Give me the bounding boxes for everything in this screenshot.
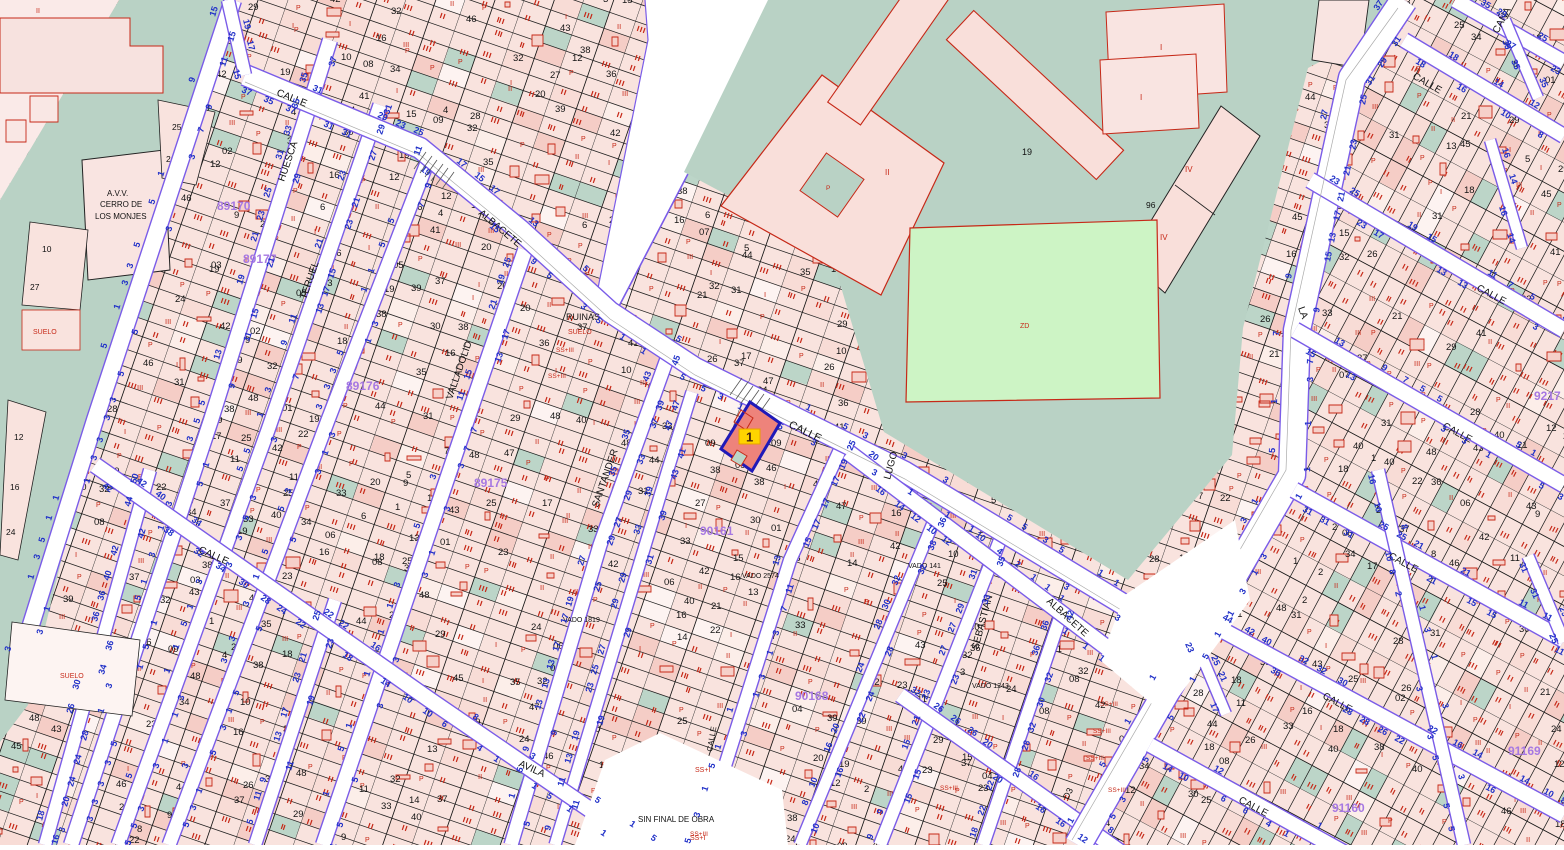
svg-text:33: 33 <box>680 536 691 547</box>
svg-text:P: P <box>569 70 574 77</box>
svg-text:42: 42 <box>890 541 901 552</box>
svg-text:32: 32 <box>513 53 524 64</box>
svg-text:P: P <box>343 403 348 410</box>
svg-text:38: 38 <box>787 813 798 824</box>
svg-text:31: 31 <box>1389 130 1400 141</box>
svg-text:P: P <box>917 630 922 637</box>
svg-text:P: P <box>521 647 526 654</box>
svg-text:06: 06 <box>325 530 336 541</box>
svg-text:P: P <box>1543 280 1548 287</box>
svg-text:35: 35 <box>483 157 494 168</box>
svg-text:P: P <box>398 322 403 329</box>
svg-text:P: P <box>419 776 424 783</box>
svg-text:47: 47 <box>504 448 515 459</box>
svg-text:12: 12 <box>1546 423 1557 434</box>
svg-text:16: 16 <box>10 482 20 492</box>
svg-text:P: P <box>993 744 998 751</box>
svg-text:P: P <box>697 731 702 738</box>
svg-text:28: 28 <box>1149 554 1160 565</box>
svg-text:31: 31 <box>1432 211 1443 222</box>
svg-text:I: I <box>495 640 497 649</box>
svg-text:29: 29 <box>1558 164 1564 175</box>
svg-text:P: P <box>349 461 354 468</box>
svg-text:16: 16 <box>674 215 685 226</box>
svg-text:15: 15 <box>733 553 744 564</box>
svg-text:43: 43 <box>915 640 926 651</box>
svg-text:1: 1 <box>746 430 753 445</box>
svg-text:I: I <box>1381 750 1383 759</box>
svg-text:89175: 89175 <box>474 476 508 490</box>
svg-text:26: 26 <box>1260 314 1271 325</box>
svg-text:10: 10 <box>948 549 959 560</box>
svg-text:14: 14 <box>677 632 688 643</box>
svg-text:14: 14 <box>409 795 420 806</box>
svg-text:89170: 89170 <box>217 199 251 213</box>
svg-text:47: 47 <box>836 501 847 512</box>
svg-text:P: P <box>593 597 598 604</box>
svg-text:III: III <box>245 408 251 417</box>
svg-text:45: 45 <box>453 673 464 684</box>
svg-text:P: P <box>679 707 684 714</box>
svg-text:42: 42 <box>610 128 621 139</box>
svg-text:6: 6 <box>705 210 710 221</box>
svg-text:32: 32 <box>1339 252 1350 263</box>
svg-text:P: P <box>581 136 586 143</box>
svg-text:21: 21 <box>1341 165 1353 177</box>
svg-text:10: 10 <box>621 365 632 376</box>
svg-text:III: III <box>1369 294 1375 303</box>
svg-text:I: I <box>1540 163 1542 172</box>
svg-text:P: P <box>578 243 583 250</box>
svg-text:19: 19 <box>1022 147 1032 157</box>
svg-text:23: 23 <box>1347 139 1359 151</box>
svg-text:P: P <box>826 185 830 192</box>
svg-text:P: P <box>1371 158 1376 165</box>
svg-text:I: I <box>478 280 480 289</box>
svg-text:19: 19 <box>280 67 291 78</box>
svg-text:I: I <box>1002 713 1004 722</box>
svg-text:SIN FINAL DE OBRA: SIN FINAL DE OBRA <box>638 815 715 824</box>
svg-text:24: 24 <box>531 622 542 633</box>
svg-text:P: P <box>1420 155 1425 162</box>
svg-text:P: P <box>1327 492 1332 499</box>
svg-text:34: 34 <box>1345 549 1356 560</box>
svg-text:P: P <box>117 453 122 460</box>
svg-text:20: 20 <box>813 753 824 764</box>
svg-text:32: 32 <box>391 6 402 17</box>
svg-text:19: 19 <box>209 264 220 275</box>
svg-text:P: P <box>1229 486 1234 493</box>
svg-text:I: I <box>1440 187 1442 196</box>
svg-text:29: 29 <box>293 809 304 820</box>
svg-text:P: P <box>281 301 286 308</box>
svg-text:2: 2 <box>1318 567 1323 578</box>
svg-text:P: P <box>482 5 487 12</box>
svg-text:23: 23 <box>498 547 509 558</box>
svg-text:LOS MONJES: LOS MONJES <box>95 212 147 221</box>
svg-text:III: III <box>687 252 693 261</box>
svg-text:II: II <box>1449 493 1453 502</box>
svg-text:I: I <box>396 86 398 95</box>
svg-text:P: P <box>206 291 211 298</box>
svg-text:P: P <box>308 764 313 771</box>
svg-text:1: 1 <box>395 502 400 513</box>
svg-text:P: P <box>1202 840 1207 845</box>
svg-text:P: P <box>612 735 617 742</box>
svg-text:16: 16 <box>445 348 456 359</box>
svg-text:20: 20 <box>520 303 531 314</box>
svg-text:P: P <box>148 342 153 349</box>
svg-text:19: 19 <box>309 414 320 425</box>
svg-text:4: 4 <box>443 105 448 116</box>
svg-text:P: P <box>859 515 864 522</box>
svg-text:P: P <box>1442 819 1447 826</box>
svg-text:VADO 2574: VADO 2574 <box>742 573 779 580</box>
svg-text:20: 20 <box>481 242 492 253</box>
svg-text:IV: IV <box>1185 165 1193 174</box>
svg-text:22: 22 <box>1220 493 1231 504</box>
svg-text:11: 11 <box>359 784 369 795</box>
svg-text:31: 31 <box>1291 610 1302 621</box>
svg-text:I: I <box>608 158 610 167</box>
svg-text:P: P <box>1025 823 1030 830</box>
svg-text:I: I <box>368 243 370 252</box>
svg-text:11: 11 <box>230 454 240 465</box>
svg-text:38: 38 <box>710 465 721 476</box>
svg-text:SS+III: SS+III <box>690 831 708 838</box>
svg-text:36: 36 <box>838 398 849 409</box>
svg-text:P: P <box>1316 367 1321 374</box>
svg-text:34: 34 <box>1471 32 1482 43</box>
svg-text:P: P <box>1428 180 1433 187</box>
svg-text:04: 04 <box>792 704 803 715</box>
svg-text:SUELO: SUELO <box>568 329 592 336</box>
svg-text:29: 29 <box>510 413 521 424</box>
svg-text:P: P <box>305 505 310 512</box>
svg-text:3: 3 <box>603 0 608 5</box>
svg-text:II: II <box>726 651 730 660</box>
svg-text:I: I <box>565 12 567 21</box>
svg-text:III: III <box>59 612 65 621</box>
svg-text:P: P <box>365 837 370 844</box>
svg-text:48: 48 <box>1426 447 1437 458</box>
svg-text:25: 25 <box>241 433 252 444</box>
svg-text:42: 42 <box>330 0 341 5</box>
svg-text:09: 09 <box>433 115 444 126</box>
svg-text:46: 46 <box>466 14 477 25</box>
svg-text:31: 31 <box>1381 418 1392 429</box>
svg-text:46: 46 <box>143 358 154 369</box>
svg-text:P: P <box>1486 68 1491 75</box>
svg-text:37: 37 <box>234 795 245 806</box>
svg-text:P: P <box>922 612 927 619</box>
svg-text:P: P <box>296 5 301 12</box>
svg-text:41: 41 <box>430 225 441 236</box>
svg-text:II: II <box>1526 835 1530 844</box>
svg-text:II: II <box>850 550 854 559</box>
svg-text:48: 48 <box>419 590 430 601</box>
svg-text:45: 45 <box>1292 212 1303 223</box>
svg-text:I: I <box>292 21 294 30</box>
svg-text:II: II <box>291 214 295 223</box>
svg-text:I: I <box>482 676 484 685</box>
svg-text:28: 28 <box>1470 407 1481 418</box>
svg-text:P: P <box>1258 332 1263 339</box>
svg-text:P: P <box>1100 620 1105 627</box>
svg-text:13: 13 <box>427 744 438 755</box>
svg-text:II: II <box>547 300 551 309</box>
svg-text:P: P <box>799 353 804 360</box>
svg-text:45: 45 <box>11 741 22 752</box>
svg-text:P: P <box>294 27 299 34</box>
svg-text:II: II <box>1508 490 1512 499</box>
svg-text:P: P <box>650 623 655 630</box>
svg-text:III: III <box>165 317 171 326</box>
svg-text:36: 36 <box>606 69 617 80</box>
svg-text:32: 32 <box>1078 666 1089 677</box>
svg-text:25: 25 <box>937 578 948 589</box>
svg-text:12: 12 <box>389 172 400 183</box>
svg-text:P: P <box>1429 303 1434 310</box>
svg-text:P: P <box>588 359 593 366</box>
svg-text:I: I <box>36 791 38 800</box>
svg-text:6: 6 <box>320 202 325 213</box>
svg-text:40: 40 <box>684 596 695 607</box>
svg-text:16: 16 <box>233 727 244 738</box>
svg-text:17: 17 <box>542 498 553 509</box>
svg-text:II: II <box>326 688 330 697</box>
svg-text:P: P <box>686 239 691 246</box>
svg-text:III: III <box>622 89 628 98</box>
svg-text:III: III <box>1414 359 1420 368</box>
svg-text:II: II <box>478 772 482 781</box>
svg-text:32: 32 <box>390 774 401 785</box>
svg-text:P: P <box>723 587 728 594</box>
svg-text:II: II <box>820 380 824 389</box>
svg-text:P: P <box>519 386 524 393</box>
svg-text:46: 46 <box>116 779 127 790</box>
svg-text:II: II <box>1530 208 1534 217</box>
svg-text:P: P <box>1402 494 1407 501</box>
svg-text:III: III <box>858 537 864 546</box>
svg-text:P: P <box>815 727 820 734</box>
svg-text:I: I <box>719 337 721 346</box>
svg-text:89176: 89176 <box>346 379 380 393</box>
svg-text:09: 09 <box>837 841 848 845</box>
svg-text:45: 45 <box>1460 139 1471 150</box>
svg-text:III: III <box>228 715 234 724</box>
svg-text:24: 24 <box>519 734 530 745</box>
svg-text:36: 36 <box>1431 477 1442 488</box>
svg-text:12: 12 <box>14 432 24 442</box>
svg-text:P: P <box>583 388 588 395</box>
svg-text:29: 29 <box>248 2 259 13</box>
svg-text:II: II <box>885 168 889 177</box>
svg-text:P: P <box>1237 473 1242 480</box>
svg-text:I: I <box>1160 43 1162 52</box>
svg-text:33: 33 <box>1283 721 1294 732</box>
svg-text:P: P <box>180 282 185 289</box>
svg-text:08: 08 <box>94 517 105 528</box>
svg-text:III: III <box>1261 742 1267 751</box>
svg-text:38: 38 <box>224 404 235 415</box>
svg-text:16: 16 <box>730 572 741 583</box>
svg-text:II: II <box>225 571 229 580</box>
svg-text:16: 16 <box>319 547 330 558</box>
svg-text:P: P <box>1389 402 1394 409</box>
svg-text:II: II <box>1431 124 1435 133</box>
svg-text:21: 21 <box>1540 687 1551 698</box>
svg-text:4: 4 <box>438 208 443 219</box>
svg-text:18: 18 <box>1204 742 1215 753</box>
svg-text:37: 37 <box>437 794 448 805</box>
svg-text:SS+III: SS+III <box>940 785 958 792</box>
svg-text:P: P <box>1421 418 1426 425</box>
svg-text:12: 12 <box>210 159 221 170</box>
svg-text:17: 17 <box>1331 210 1343 222</box>
svg-text:9: 9 <box>403 478 408 489</box>
svg-text:P: P <box>391 419 396 426</box>
svg-text:40: 40 <box>1384 457 1395 468</box>
svg-text:09: 09 <box>771 438 782 449</box>
svg-text:45: 45 <box>1541 189 1552 200</box>
svg-text:36: 36 <box>539 338 550 349</box>
svg-text:46: 46 <box>766 463 777 474</box>
svg-text:I: I <box>1325 641 1327 650</box>
svg-text:P: P <box>1410 710 1415 717</box>
svg-text:24: 24 <box>1551 724 1562 735</box>
svg-text:P: P <box>1496 397 1501 404</box>
svg-text:91169: 91169 <box>1508 744 1541 758</box>
svg-text:38: 38 <box>754 477 765 488</box>
svg-text:48: 48 <box>296 768 307 779</box>
svg-text:P: P <box>547 232 552 239</box>
svg-text:40: 40 <box>1353 441 1364 452</box>
svg-text:II: II <box>1524 685 1528 694</box>
svg-text:21: 21 <box>711 601 722 612</box>
svg-text:48: 48 <box>550 411 561 422</box>
svg-text:29: 29 <box>435 629 446 640</box>
svg-text:P: P <box>465 564 470 571</box>
svg-text:34: 34 <box>301 517 312 528</box>
svg-text:III: III <box>972 712 978 721</box>
svg-text:31: 31 <box>731 285 742 296</box>
svg-text:II: II <box>575 152 579 161</box>
svg-text:I: I <box>784 482 786 491</box>
svg-text:II: II <box>1249 352 1253 361</box>
svg-text:32: 32 <box>467 123 478 134</box>
svg-text:P: P <box>1520 653 1525 660</box>
svg-text:II: II <box>1451 115 1455 124</box>
svg-text:18: 18 <box>1333 724 1344 735</box>
svg-text:P: P <box>96 502 101 509</box>
svg-text:III: III <box>1355 328 1361 337</box>
svg-text:SS+III: SS+III <box>1100 701 1118 708</box>
svg-text:35: 35 <box>416 367 427 378</box>
svg-text:II: II <box>450 0 454 8</box>
svg-text:13: 13 <box>1326 232 1338 244</box>
svg-text:15: 15 <box>1322 251 1334 263</box>
svg-text:32: 32 <box>267 361 278 372</box>
svg-text:P: P <box>260 719 265 726</box>
svg-text:40: 40 <box>576 415 587 426</box>
svg-text:III: III <box>266 535 272 544</box>
svg-text:18: 18 <box>1464 185 1475 196</box>
svg-text:P: P <box>1067 715 1072 722</box>
svg-text:III: III <box>717 701 723 710</box>
svg-text:27: 27 <box>30 282 40 292</box>
svg-text:26: 26 <box>1245 735 1256 746</box>
svg-text:44: 44 <box>649 455 660 466</box>
svg-text:P: P <box>148 530 153 537</box>
svg-text:II: II <box>535 437 539 446</box>
svg-text:9: 9 <box>341 832 346 843</box>
svg-text:P: P <box>1473 717 1478 724</box>
svg-text:7: 7 <box>1271 331 1281 336</box>
svg-text:25: 25 <box>1357 94 1369 106</box>
svg-text:P: P <box>1324 457 1329 464</box>
svg-text:43: 43 <box>189 587 200 598</box>
svg-text:18: 18 <box>1231 675 1242 686</box>
svg-text:22: 22 <box>298 429 309 440</box>
svg-text:46: 46 <box>181 193 192 204</box>
svg-text:21: 21 <box>1392 311 1403 322</box>
svg-text:40: 40 <box>1328 744 1339 755</box>
svg-text:P: P <box>337 431 342 438</box>
svg-text:38: 38 <box>253 660 264 671</box>
svg-text:P: P <box>1417 93 1422 100</box>
svg-text:41: 41 <box>359 91 370 102</box>
svg-text:III: III <box>1311 394 1317 403</box>
svg-text:II: II <box>1486 746 1490 755</box>
svg-text:IV: IV <box>1160 233 1168 242</box>
svg-text:28: 28 <box>1193 688 1204 699</box>
svg-text:15: 15 <box>622 0 633 6</box>
svg-text:P: P <box>450 415 455 422</box>
svg-text:II: II <box>1417 210 1421 219</box>
svg-text:III: III <box>634 397 640 406</box>
svg-text:16: 16 <box>1286 249 1297 260</box>
svg-text:30: 30 <box>750 515 761 526</box>
svg-text:91160: 91160 <box>1332 801 1365 815</box>
svg-text:P: P <box>1557 281 1562 288</box>
svg-text:P: P <box>1427 363 1432 370</box>
svg-text:I: I <box>710 268 712 277</box>
svg-text:30: 30 <box>1188 789 1199 800</box>
svg-text:P: P <box>1011 787 1016 794</box>
svg-text:37: 37 <box>435 276 446 287</box>
svg-text:III: III <box>562 516 568 525</box>
svg-text:21: 21 <box>697 290 708 301</box>
svg-text:24: 24 <box>6 527 16 537</box>
svg-text:P: P <box>760 314 765 321</box>
svg-text:II: II <box>36 8 40 15</box>
svg-text:III: III <box>1475 738 1481 747</box>
svg-text:16: 16 <box>376 33 387 44</box>
svg-text:P: P <box>256 131 261 138</box>
svg-text:16: 16 <box>676 610 687 621</box>
svg-text:33: 33 <box>1322 308 1333 319</box>
svg-text:I: I <box>685 521 687 530</box>
svg-text:35: 35 <box>510 677 521 688</box>
svg-text:48: 48 <box>29 713 40 724</box>
svg-text:16: 16 <box>1302 706 1313 717</box>
svg-text:38: 38 <box>458 322 469 333</box>
svg-text:13: 13 <box>748 587 759 598</box>
svg-text:21: 21 <box>1461 111 1472 122</box>
svg-text:P: P <box>1401 468 1406 475</box>
svg-text:P: P <box>716 505 721 512</box>
